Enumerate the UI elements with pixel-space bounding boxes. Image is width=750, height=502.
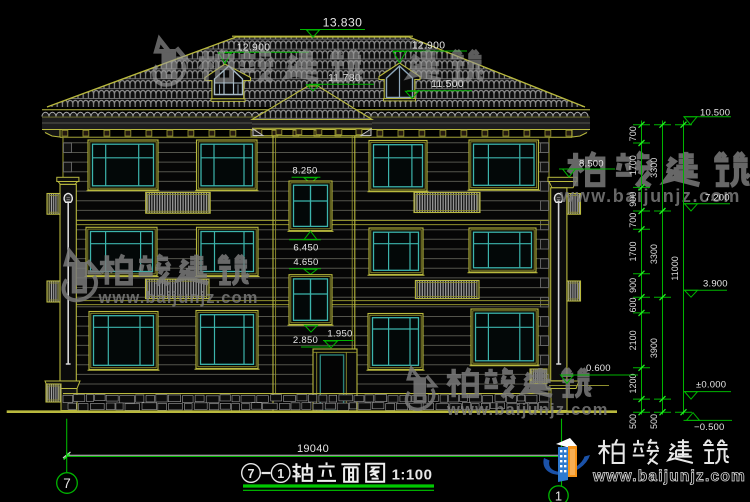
svg-text:1: 1 [277,467,284,481]
svg-text:700: 700 [628,126,638,141]
svg-text:3.900: 3.900 [703,279,728,290]
svg-text:7: 7 [63,476,71,491]
svg-text:0.600: 0.600 [586,363,611,374]
svg-text:700: 700 [628,213,638,228]
svg-text:3900: 3900 [649,338,659,358]
svg-text:1200: 1200 [628,373,638,393]
svg-text:19040: 19040 [297,443,329,455]
svg-text:500: 500 [628,414,638,429]
svg-text:1700: 1700 [628,155,638,175]
svg-text:8.500: 8.500 [579,158,604,169]
svg-text:13.830: 13.830 [323,16,363,30]
svg-text:−0.500: −0.500 [694,422,725,433]
svg-text:3300: 3300 [649,244,659,264]
svg-text:1700: 1700 [628,241,638,261]
svg-text:2.850: 2.850 [293,335,318,346]
svg-text:7.200: 7.200 [705,192,730,203]
svg-text:1:100: 1:100 [392,467,433,484]
svg-text:8.250: 8.250 [292,166,317,177]
svg-text:500: 500 [649,414,659,429]
svg-text:±0.000: ±0.000 [696,380,726,391]
svg-text:www.baijunjz.com: www.baijunjz.com [98,289,259,307]
svg-text:1: 1 [555,489,562,502]
svg-text:900: 900 [628,192,638,207]
svg-text:600: 600 [628,297,638,312]
svg-text:3300: 3300 [649,158,659,178]
svg-text:7: 7 [248,467,255,481]
svg-text:www.baijunjz.com: www.baijunjz.com [592,468,746,485]
svg-text:4.650: 4.650 [293,257,318,268]
svg-text:2100: 2100 [628,330,638,350]
svg-text:1.950: 1.950 [327,328,352,339]
svg-text:11000: 11000 [670,256,680,280]
svg-text:www.baijunjz.com: www.baijunjz.com [446,401,609,419]
svg-text:900: 900 [628,278,638,293]
svg-text:6.450: 6.450 [293,243,318,254]
